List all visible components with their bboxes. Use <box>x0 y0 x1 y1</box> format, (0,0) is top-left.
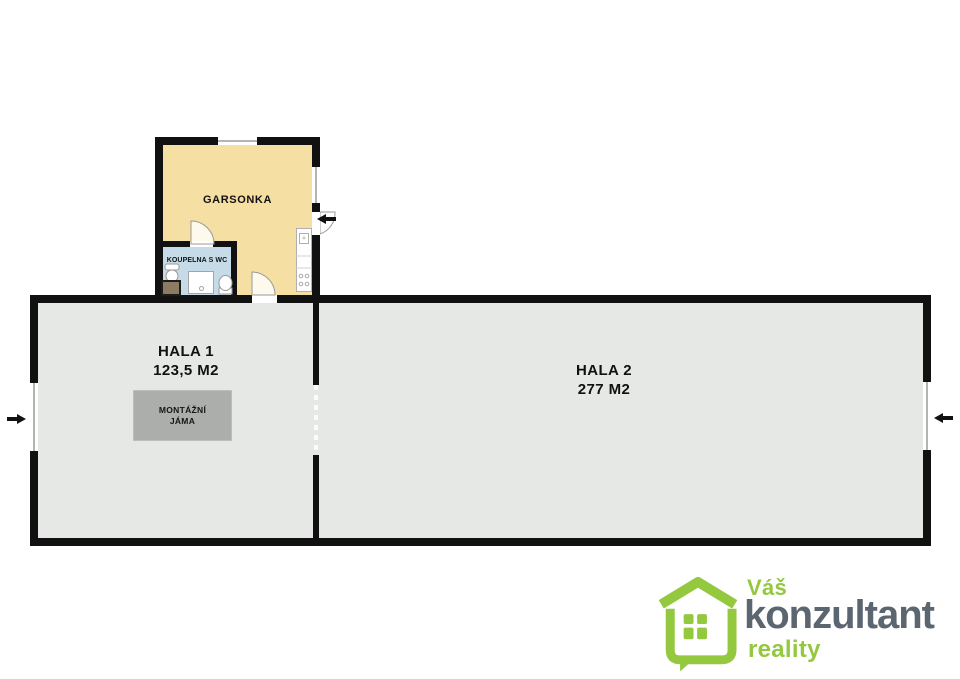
entrance-arrow-left-icon <box>316 213 336 225</box>
shower-drain-icon <box>199 286 204 291</box>
floor-plan: GARSONKA KOUPELNA S WC HALA 1 123,5 M2 H… <box>0 0 960 679</box>
opening-dashed <box>314 385 318 455</box>
assembly-pit: MONTÁŽNÍ JÁMA <box>133 390 232 441</box>
shower-icon <box>188 271 214 294</box>
logo-text-reality: reality <box>748 636 821 664</box>
garsonka-hall-door-gap <box>252 295 277 303</box>
gate-right-glass <box>926 382 928 450</box>
garsonka-hall-door-arc-icon <box>250 268 278 296</box>
hala2-name: HALA 2 <box>529 361 679 380</box>
agency-logo: Váš konzultant reality <box>655 574 955 674</box>
window-right-glass <box>315 167 317 203</box>
bathroom-door-arc-icon <box>188 217 216 245</box>
wall-divider-bottom <box>313 455 319 538</box>
room-label-hala1: HALA 1 123,5 M2 <box>111 342 261 380</box>
entry-arrow-left-icon <box>933 412 953 424</box>
bathroom-wall-top-left <box>163 241 190 247</box>
logo-text-konzultant: konzultant <box>744 595 934 635</box>
hala2-area: 277 M2 <box>529 380 679 399</box>
entry-arrow-right-icon <box>7 413 27 425</box>
toilet-icon <box>217 275 235 295</box>
kitchenette-counter <box>296 228 312 292</box>
washer-icon <box>161 280 181 296</box>
hala1-name: HALA 1 <box>111 342 261 361</box>
gate-left-glass <box>33 383 35 451</box>
room-label-koupelna: KOUPELNA S WC <box>162 257 232 264</box>
room-label-garsonka: GARSONKA <box>163 194 312 206</box>
house-logo-icon <box>655 574 741 674</box>
pit-label-line1: MONTÁŽNÍ <box>159 405 206 416</box>
window-top-glass <box>218 140 257 142</box>
hala1-area: 123,5 M2 <box>111 361 261 380</box>
pit-label-line2: JÁMA <box>170 416 195 427</box>
wall-divider-top <box>313 303 319 385</box>
room-label-hala2: HALA 2 277 M2 <box>529 361 679 399</box>
